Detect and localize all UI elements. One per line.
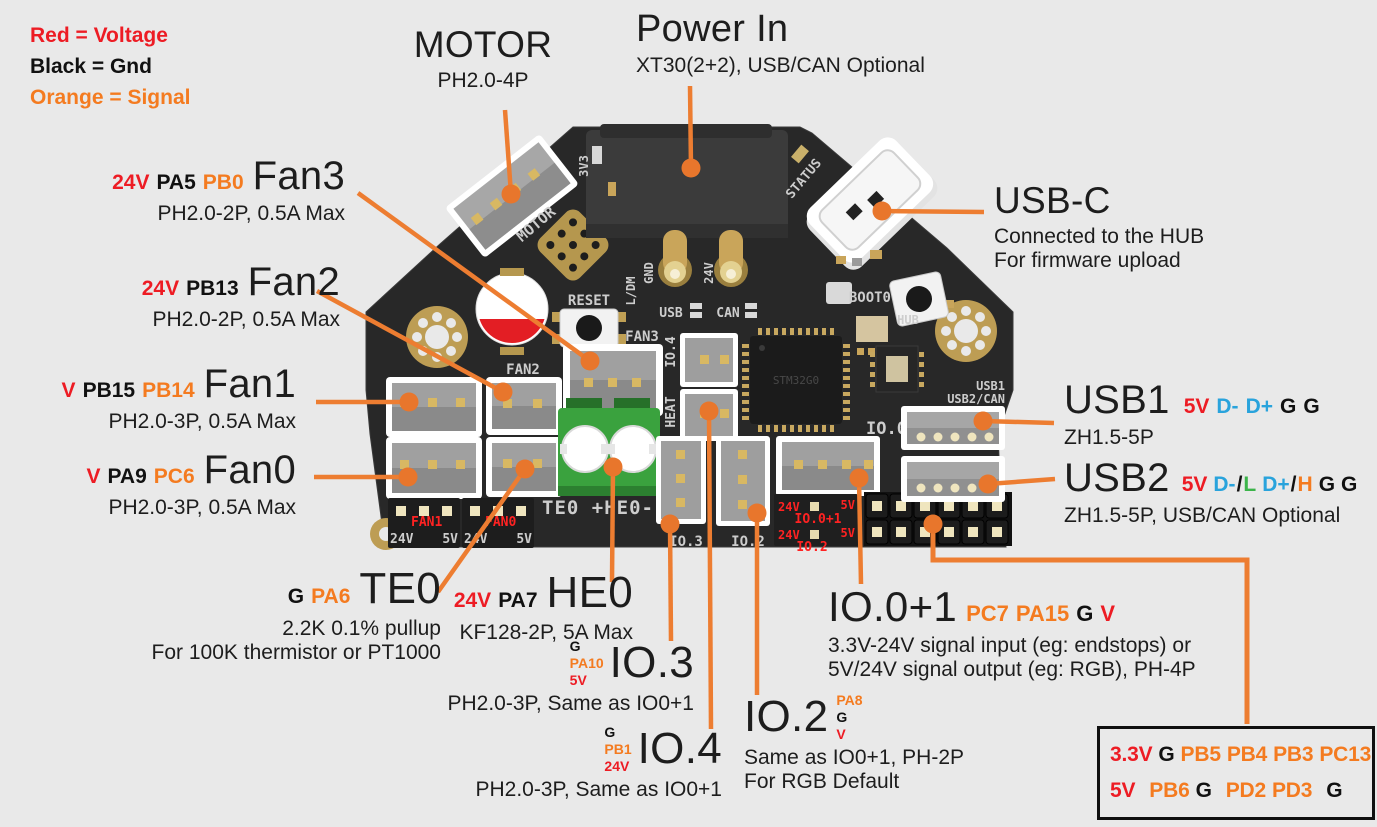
fan1-connector	[386, 377, 482, 437]
color-legend: Red = Voltage Black = Gnd Orange = Signa…	[30, 20, 190, 113]
fan1-voltage-header: FAN1 24V 5V	[388, 498, 460, 548]
pin-pd3: PD3	[1272, 779, 1312, 803]
usb2-pin-dminus: D-	[1213, 473, 1235, 497]
dot-usb1	[974, 412, 993, 431]
usb2-slash1: /	[1237, 473, 1243, 497]
pinout-diagram: MOTOR STATUS 3V3 L/DM GND 24V USB CAN RE…	[0, 0, 1377, 827]
annotation-power-in: Power In XT30(2+2), USB/CAN Optional	[636, 8, 925, 78]
pin-pc13: PC13	[1319, 743, 1371, 767]
io3-sub: PH2.0-3P, Same as IO0+1	[447, 692, 694, 716]
dot-io01	[850, 469, 869, 488]
usbc-title: USB-C	[994, 180, 1204, 222]
silk-boot0: BOOT0	[849, 290, 891, 306]
io01-pin-voltage: V	[1100, 601, 1115, 627]
power-in-sub: XT30(2+2), USB/CAN Optional	[636, 54, 925, 78]
annotation-te0: G PA6 TE0 2.2K 0.1% pullup For 100K ther…	[152, 564, 441, 665]
silk-rail-5v-b: 5V	[841, 526, 855, 540]
io4-pin-gnd: G	[604, 724, 631, 741]
annotation-he0: 24V PA7 HE0 KF128-2P, 5A Max	[454, 568, 633, 645]
legend-signal: Orange = Signal	[30, 82, 190, 113]
annotation-motor: MOTOR PH2.0-4P	[398, 24, 568, 93]
usb1-title: USB1	[1064, 378, 1170, 423]
fan2-pin-voltage: 24V	[142, 277, 179, 301]
silk-te0-he0: TE0 +HE0-	[542, 497, 654, 519]
io2-sub1: Same as IO0+1, PH-2P	[744, 746, 964, 770]
io01-pin-pa15: PA15	[1016, 601, 1069, 627]
annotation-usbc: USB-C Connected to the HUB For firmware …	[994, 180, 1204, 273]
io4-sub: PH2.0-3P, Same as IO0+1	[475, 778, 722, 802]
silk-fan1-24v: 24V	[390, 532, 414, 547]
fan2-title: Fan2	[248, 260, 340, 305]
io01-sub1: 3.3V-24V signal input (eg: endstops) or	[828, 634, 1196, 658]
io4-connector	[680, 333, 738, 387]
io-rail-header: 24V 5V IO.0+1 24V 5V IO.2	[774, 494, 858, 555]
usb2-slash2: /	[1291, 473, 1297, 497]
line-he0	[612, 467, 613, 582]
fan2-pin-gnd: PB13	[186, 277, 239, 301]
line-power	[690, 86, 691, 168]
silk-io2-red: IO.2	[796, 540, 827, 555]
mcu-chip: STM32G0	[742, 328, 850, 432]
io4-pin-stack: G PB1 24V	[604, 724, 631, 775]
usb1-sub: ZH1.5-5P	[1064, 426, 1320, 450]
usbc-sub1: Connected to the HUB	[994, 225, 1204, 249]
silk-io3: IO.3	[669, 534, 703, 550]
silk-24v: 24V	[702, 262, 716, 284]
pin-pb3: PB3	[1273, 743, 1313, 767]
fan0-pin-gnd: PA9	[107, 465, 146, 489]
dot-power	[682, 159, 701, 178]
pin-g2: G	[1196, 779, 1212, 803]
dot-motor	[502, 185, 521, 204]
usb2-title: USB2	[1064, 456, 1170, 501]
annotation-fan3: 24V PA5 PB0 Fan3 PH2.0-2P, 0.5A Max	[112, 154, 345, 226]
fan0-pins: V PA9 PC6	[86, 465, 194, 489]
dot-he0	[604, 458, 623, 477]
usb2-pin-g1: G	[1319, 473, 1335, 497]
fan0-pin-voltage: V	[86, 465, 100, 489]
io01-pins: PC7 PA15 G V	[966, 601, 1115, 627]
fan2-sub: PH2.0-2P, 0.5A Max	[142, 308, 340, 332]
annotation-fan0: V PA9 PC6 Fan0 PH2.0-3P, 0.5A Max	[86, 448, 296, 520]
annotation-usb2: USB2 5V D- / L D+ / H G G ZH1.5-5P, USB/…	[1064, 456, 1357, 528]
io2-pin-stack: PA8 G V	[836, 692, 862, 743]
line-io3	[670, 524, 671, 641]
annotation-io3: G PA10 5V IO.3 PH2.0-3P, Same as IO0+1	[447, 638, 694, 716]
pin-pd2: PD2	[1226, 779, 1266, 803]
usb2-pin-g2: G	[1341, 473, 1357, 497]
io3-connector	[656, 436, 706, 524]
line-io01	[859, 478, 861, 584]
io3-pin-gnd: G	[570, 638, 604, 655]
silk-3v3: 3V3	[577, 155, 591, 177]
io2-sub2: For RGB Default	[744, 770, 964, 794]
io2-pin-voltage: V	[836, 726, 862, 743]
io4-title: IO.4	[638, 724, 722, 774]
he0-pins: 24V PA7	[454, 589, 538, 613]
io3-pin-signal: PA10	[570, 655, 604, 672]
dot-usbc	[873, 202, 892, 221]
usb2-pin-dplus: D+	[1262, 473, 1289, 497]
io3-pin-stack: G PA10 5V	[570, 638, 604, 689]
dot-usb2	[979, 475, 998, 494]
silk-io01-red: IO.0+1	[795, 512, 842, 527]
dot-io4	[700, 402, 719, 421]
dot-fan2	[494, 383, 513, 402]
annotation-io2: IO.2 PA8 G V Same as IO0+1, PH-2P For RG…	[744, 692, 964, 794]
fan0-sub: PH2.0-3P, 0.5A Max	[86, 496, 296, 520]
fan3-pin-gnd: PA5	[156, 171, 195, 195]
dot-pinbox	[924, 515, 943, 534]
io3-title: IO.3	[610, 638, 694, 688]
line-io4	[709, 411, 711, 729]
fan0-title: Fan0	[204, 448, 296, 493]
dot-io2	[748, 504, 767, 523]
annotation-fan1: V PB15 PB14 Fan1 PH2.0-3P, 0.5A Max	[62, 362, 296, 434]
pin-table-row2: 5V PB6 G PD2 PD3 G	[1110, 779, 1362, 803]
fan3-sub: PH2.0-2P, 0.5A Max	[112, 202, 345, 226]
motor-sub: PH2.0-4P	[398, 69, 568, 93]
silk-can: CAN	[716, 306, 740, 321]
silk-fan1-red: FAN1	[411, 515, 442, 530]
silk-usb: USB	[659, 306, 683, 321]
fan2-pins: 24V PB13	[142, 277, 239, 301]
io2-title: IO.2	[744, 692, 828, 742]
usb2-pin-5v: 5V	[1182, 473, 1208, 497]
dot-io3	[661, 515, 680, 534]
te0-title: TE0	[359, 564, 441, 614]
he0-pin-voltage: 24V	[454, 589, 491, 613]
heater-terminal	[558, 398, 660, 496]
silk-io4: IO.4	[664, 336, 679, 367]
silk-gnd: GND	[642, 262, 656, 284]
silk-fan0-5v: 5V	[516, 532, 532, 547]
fan3-title: Fan3	[253, 154, 345, 199]
usb1-pin-dminus: D-	[1216, 395, 1238, 419]
usb2-pins: 5V D- / L D+ / H G G	[1182, 473, 1358, 497]
io01-pin-pc7: PC7	[966, 601, 1009, 627]
fan3-pin-signal: PB0	[203, 171, 244, 195]
io01-pin-gnd: G	[1076, 601, 1093, 627]
dot-fan3	[581, 352, 600, 371]
pin-5v: 5V	[1110, 779, 1135, 803]
silk-rail-5v-a: 5V	[841, 498, 855, 512]
fan0-pin-signal: PC6	[154, 465, 195, 489]
silk-hub: HUB	[897, 313, 919, 327]
annotation-fan2: 24V PB13 Fan2 PH2.0-2P, 0.5A Max	[142, 260, 340, 332]
chip-marking: STM32G0	[773, 374, 819, 387]
fan3-pins: 24V PA5 PB0	[112, 171, 244, 195]
usb2-pin-canh: H	[1298, 473, 1313, 497]
silk-usb2can: USB2/CAN	[947, 392, 1005, 406]
dot-te0	[516, 460, 535, 479]
expansion-pin-table: 3.3V G PB5 PB4 PB3 PC13 5V PB6 G PD2 PD3…	[1097, 726, 1375, 820]
pin-pb6: PB6	[1149, 779, 1189, 803]
te0-sub1: 2.2K 0.1% pullup	[152, 617, 441, 641]
usb1-pin-g2: G	[1303, 395, 1319, 419]
annotation-usb1: USB1 5V D- D+ G G ZH1.5-5P	[1064, 378, 1320, 450]
he0-pin-gnd: PA7	[498, 589, 537, 613]
dot-fan0	[399, 468, 418, 487]
io01-connector	[776, 436, 880, 496]
pin-table-row1: 3.3V G PB5 PB4 PB3 PC13	[1110, 743, 1362, 767]
power-in-title: Power In	[636, 8, 925, 51]
silk-io2: IO.2	[731, 534, 765, 550]
fan3-pin-voltage: 24V	[112, 171, 149, 195]
fan1-pins: V PB15 PB14	[62, 379, 195, 403]
silk-reset: RESET	[568, 293, 610, 309]
usb1-pins: 5V D- D+ G G	[1184, 395, 1320, 419]
usb1-pin-dplus: D+	[1246, 395, 1273, 419]
silk-fan1-5v: 5V	[442, 532, 458, 547]
io4-pin-voltage: 24V	[604, 758, 631, 775]
he0-title: HE0	[547, 568, 634, 618]
te0-pins: G PA6	[288, 585, 351, 609]
te0-pin-signal: PA6	[311, 585, 350, 609]
usbc-sub2: For firmware upload	[994, 249, 1204, 273]
pin-3v3: 3.3V	[1110, 743, 1152, 767]
silk-ldm: L/DM	[624, 277, 638, 306]
usb1-pin-g1: G	[1280, 395, 1296, 419]
pin-g3: G	[1326, 779, 1342, 803]
qfn-chip	[870, 346, 924, 392]
usb2-pin-canl: L	[1243, 473, 1256, 497]
line-usb1	[983, 421, 1054, 423]
usb1-pin-5v: 5V	[1184, 395, 1210, 419]
pin-pb5: PB5	[1181, 743, 1221, 767]
io4-pin-signal: PB1	[604, 741, 631, 758]
io2-pin-gnd: G	[836, 709, 862, 726]
motor-title: MOTOR	[398, 24, 568, 66]
fan1-pin-gnd: PB15	[83, 379, 136, 403]
io3-pin-voltage: 5V	[570, 672, 604, 689]
pin-g1: G	[1158, 743, 1174, 767]
usb2-sub: ZH1.5-5P, USB/CAN Optional	[1064, 504, 1357, 528]
legend-voltage: Red = Voltage	[30, 20, 190, 51]
silk-fan2: FAN2	[506, 362, 540, 378]
fan0-connector	[386, 437, 482, 499]
fan1-sub: PH2.0-3P, 0.5A Max	[62, 410, 296, 434]
fan1-pin-voltage: V	[62, 379, 76, 403]
te0-sub2: For 100K thermistor or PT1000	[152, 641, 441, 665]
te0-pin-gnd: G	[288, 585, 304, 609]
annotation-io4: G PB1 24V IO.4 PH2.0-3P, Same as IO0+1	[475, 724, 722, 802]
dot-fan1	[400, 393, 419, 412]
fan1-pin-signal: PB14	[142, 379, 195, 403]
silk-fan3: FAN3	[625, 329, 659, 345]
silk-usb1: USB1	[976, 379, 1005, 393]
io2-pin-signal: PA8	[836, 692, 862, 709]
fan1-title: Fan1	[204, 362, 296, 407]
annotation-io01: IO.0+1 PC7 PA15 G V 3.3V-24V signal inpu…	[828, 583, 1196, 682]
line-usbc	[882, 211, 984, 212]
pin-pb4: PB4	[1227, 743, 1267, 767]
io01-title: IO.0+1	[828, 583, 957, 631]
legend-gnd: Black = Gnd	[30, 51, 190, 82]
io01-sub2: 5V/24V signal output (eg: RGB), PH-4P	[828, 658, 1196, 682]
silk-heat: HEAT	[664, 396, 679, 427]
